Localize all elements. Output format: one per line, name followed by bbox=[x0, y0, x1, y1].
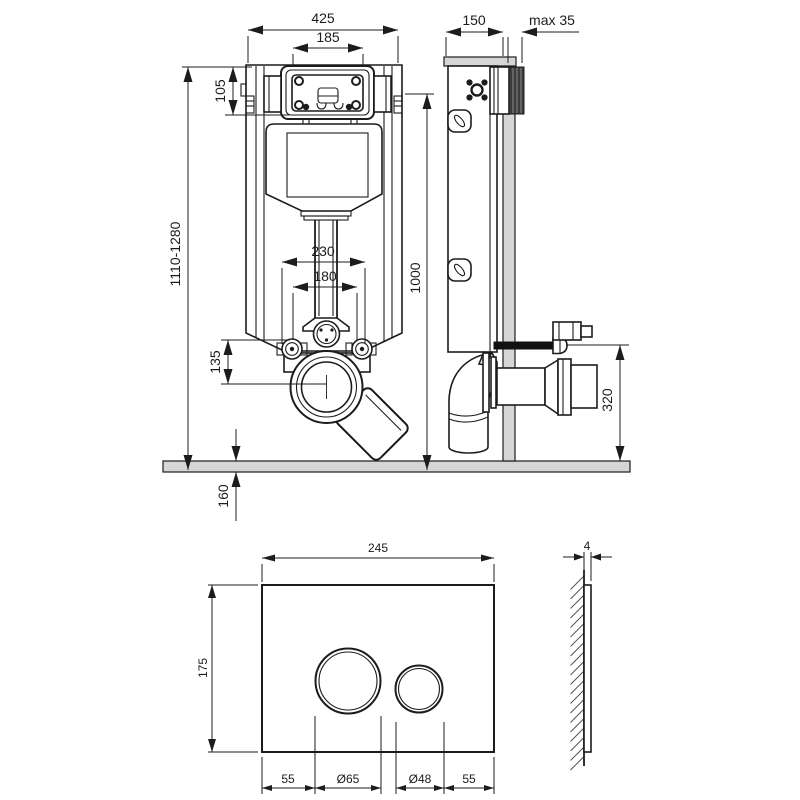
inlet-connector bbox=[553, 322, 592, 340]
dim-label-margin-right: 55 bbox=[462, 772, 476, 786]
floor-line bbox=[163, 461, 630, 472]
box-wing-right bbox=[374, 76, 391, 112]
dim-plate-width: 245 bbox=[262, 541, 494, 582]
dim-label-outlet-offset: 135 bbox=[207, 350, 223, 374]
big-flush-button bbox=[316, 649, 381, 714]
dim-label-install-height: 1110-1280 bbox=[167, 221, 183, 286]
dim-label-plate-width: 245 bbox=[368, 541, 388, 555]
installation-drawing: 425 185 105 1110-1280 1000 bbox=[0, 0, 800, 800]
dim-frame-depth: 150 bbox=[446, 12, 503, 56]
dim-label-plate-height: 175 bbox=[196, 658, 210, 678]
dim-label-bolt-spacing-outer: 230 bbox=[311, 243, 335, 259]
wall-bracket-top bbox=[448, 110, 471, 132]
flush-plate-edge bbox=[584, 585, 591, 752]
technical-drawing-page: 425 185 105 1110-1280 1000 bbox=[0, 0, 800, 800]
dim-plate-height: 175 bbox=[196, 585, 258, 752]
small-flush-button bbox=[396, 666, 443, 713]
dim-label-big-button: Ø65 bbox=[337, 772, 360, 786]
dim-install-height: 1110-1280 bbox=[167, 67, 193, 470]
flush-plate-front-view bbox=[262, 585, 494, 752]
flush-opening-box bbox=[490, 67, 524, 114]
screw-hole bbox=[352, 77, 360, 85]
screw-hole bbox=[295, 77, 303, 85]
pipe-flange bbox=[314, 321, 340, 347]
drain-elbow-front bbox=[291, 351, 363, 423]
screw-hole bbox=[295, 101, 303, 109]
dim-label-wall-finish-max: max 35 bbox=[529, 12, 575, 28]
dim-wall-finish-max: max 35 bbox=[508, 12, 579, 63]
top-rail bbox=[444, 57, 516, 66]
drain-elbow-side bbox=[449, 352, 497, 453]
dim-service-opening-width: 185 bbox=[293, 29, 363, 65]
dim-floor-recess: 160 bbox=[215, 429, 241, 521]
dim-label-frame-width: 425 bbox=[311, 10, 335, 26]
dim-label-service-opening-height: 105 bbox=[212, 79, 228, 103]
flush-plate-side-view bbox=[571, 570, 592, 770]
dim-label-bolt-spacing-inner: 180 bbox=[313, 268, 337, 284]
dim-plate-thickness: 4 bbox=[563, 539, 612, 581]
wall-bracket-bottom bbox=[448, 259, 471, 281]
dim-label-small-button: Ø48 bbox=[409, 772, 432, 786]
dim-label-plate-thickness: 4 bbox=[584, 539, 591, 553]
dim-label-service-opening-width: 185 bbox=[316, 29, 340, 45]
frame-front-view bbox=[241, 65, 410, 462]
wall-hatching bbox=[571, 576, 585, 770]
service-access-box bbox=[264, 66, 391, 125]
dim-label-outlet-height: 320 bbox=[599, 388, 615, 412]
box-wing-left bbox=[264, 76, 281, 112]
frame-side-view bbox=[444, 57, 597, 461]
dim-fixing-height: 1000 bbox=[405, 94, 434, 470]
dim-label-frame-depth: 150 bbox=[462, 12, 486, 28]
dim-label-fixing-height: 1000 bbox=[407, 262, 423, 293]
screw-hole bbox=[352, 101, 360, 109]
dim-label-margin-left: 55 bbox=[281, 772, 295, 786]
dim-label-floor-recess: 160 bbox=[215, 484, 231, 508]
